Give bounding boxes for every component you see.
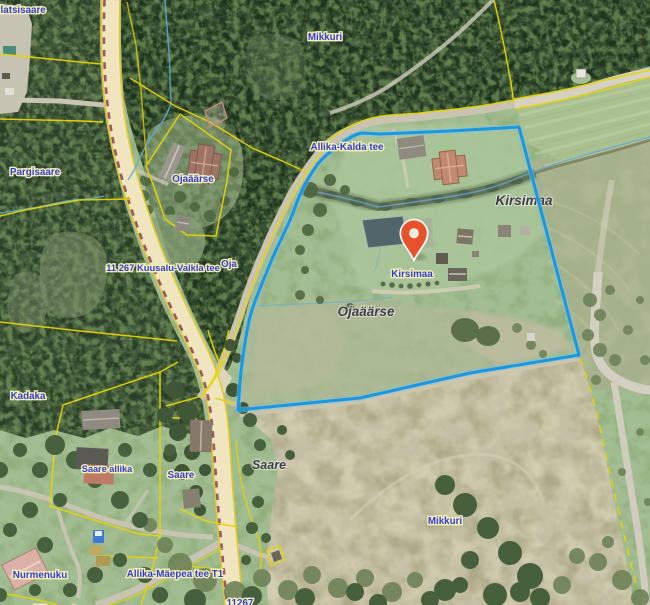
- svg-text:Allika-Kalda tee: Allika-Kalda tee: [311, 142, 385, 153]
- svg-text:Kadaka: Kadaka: [11, 391, 46, 402]
- svg-text:Pargisaare: Pargisaare: [10, 167, 61, 178]
- svg-text:Platsisaare: Platsisaare: [0, 5, 46, 16]
- svg-text:11267: 11267: [227, 598, 254, 605]
- svg-text:Kirsimaa: Kirsimaa: [391, 269, 433, 280]
- svg-text:Saare: Saare: [252, 458, 286, 472]
- svg-text:Oja: Oja: [221, 259, 237, 270]
- svg-text:11 267 Kuusalu-Valkla tee: 11 267 Kuusalu-Valkla tee: [106, 262, 220, 273]
- svg-text:Mikkuri: Mikkuri: [428, 516, 463, 527]
- svg-text:Nurmenuku: Nurmenuku: [13, 570, 67, 581]
- svg-text:Kirsimaa: Kirsimaa: [495, 193, 553, 208]
- svg-text:Mikkuri: Mikkuri: [308, 32, 343, 43]
- svg-text:Saare: Saare: [168, 470, 195, 481]
- svg-text:Ojaäärse: Ojaäärse: [172, 174, 214, 185]
- svg-text:Ojaäärse: Ojaäärse: [337, 304, 395, 319]
- svg-text:Allika-Mäepea tee T1: Allika-Mäepea tee T1: [127, 569, 224, 580]
- svg-text:Saare allika: Saare allika: [82, 464, 133, 474]
